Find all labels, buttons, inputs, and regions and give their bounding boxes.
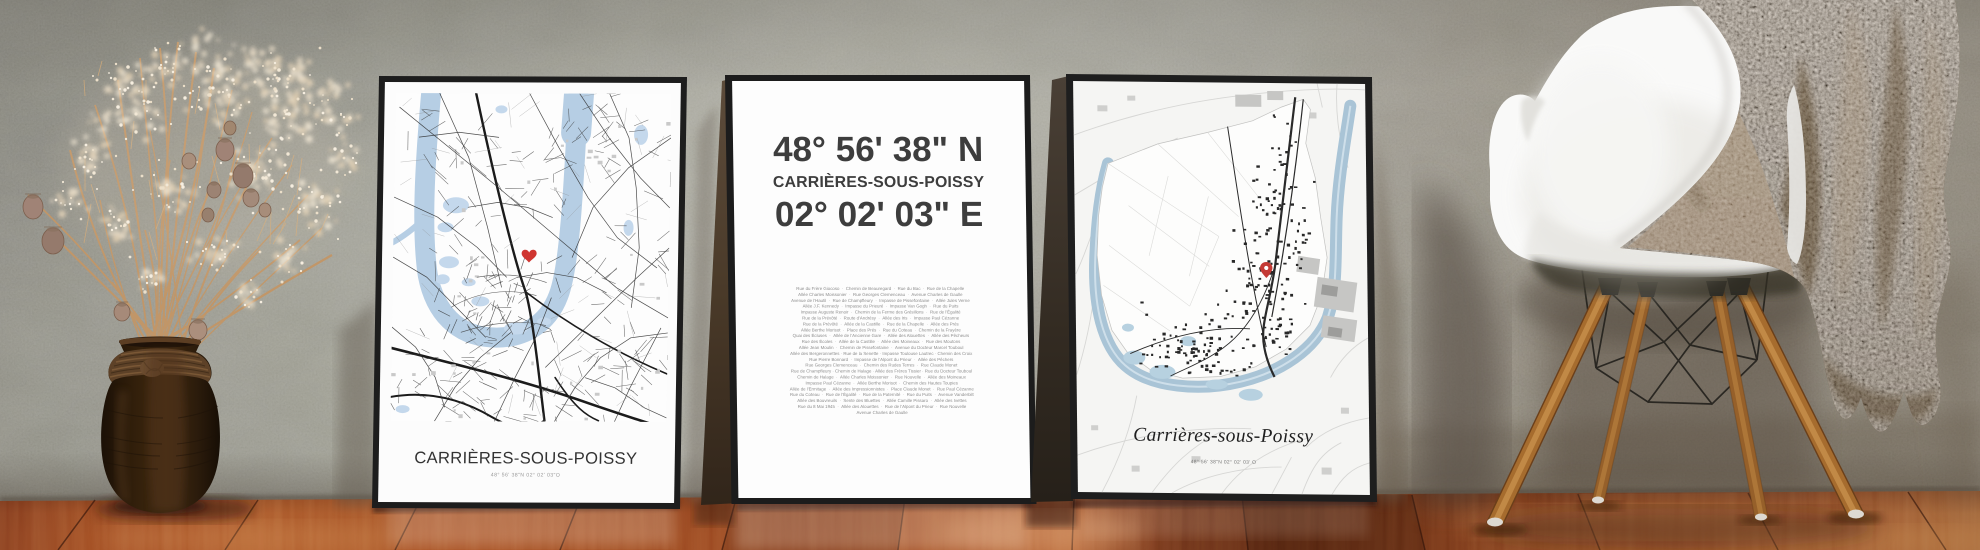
svg-text:Rue du Frère Giocoso · Chemi: Rue du Frère Giocoso · Chemin de Beaureg… <box>796 286 965 291</box>
svg-text:02° 02' 03" E: 02° 02' 03" E <box>775 195 984 234</box>
svg-text:Rue Georges Clemenceau · Che: Rue Georges Clemenceau · Chemin des Rude… <box>805 363 958 368</box>
svg-text:Rue de Champfleury · Chemin de: Rue de Champfleury · Chemin de Halage · … <box>791 369 972 374</box>
svg-text:Rue de la Prévôté · Route d': Rue de la Prévôté · Route d'Andrésy · Al… <box>802 316 960 321</box>
svg-text:Rue de la Prévôté · Allée de: Rue de la Prévôté · Allée de la Castille… <box>803 321 960 326</box>
svg-text:Impasse Paul Cézanne · Allée: Impasse Paul Cézanne · Allée Berthe Mori… <box>805 380 958 385</box>
svg-text:48° 56' 38"N 02° 02' 03"O: 48° 56' 38"N 02° 02' 03"O <box>491 472 561 478</box>
svg-text:Allée Jean Moulin · Chemin d: Allée Jean Moulin · Chemin de Pissefonta… <box>799 345 964 350</box>
svg-text:Impasse Auguste Renoir · Che: Impasse Auguste Renoir · Chemin de la Fe… <box>801 310 962 315</box>
svg-text:Allée Charles Moissonier · R: Allée Charles Moissonier · Rue Georges C… <box>798 292 963 297</box>
svg-text:Chemin de Halage · Allée Cha: Chemin de Halage · Allée Charles Moisson… <box>797 375 967 380</box>
svg-text:Avenue Charles de Gaulle: Avenue Charles de Gaulle <box>856 410 908 415</box>
svg-text:Rue du 8 Mai 1945 · Allée de: Rue du 8 Mai 1945 · Allée des Alouettes … <box>798 404 967 409</box>
svg-text:Quai des Écluses · Allée de: Quai des Écluses · Allée de l'Ancienne G… <box>793 333 970 338</box>
svg-text:48° 56' 38"N 02° 02' 03' O: 48° 56' 38"N 02° 02' 03' O <box>1191 459 1257 466</box>
svg-text:Allée des Bouvreuils · Sente: Allée des Bouvreuils · Sente des Bluette… <box>797 398 967 403</box>
svg-text:Allée Berthe Morisot · Place: Allée Berthe Morisot · Place des Prés · … <box>801 327 961 332</box>
svg-text:Allée J.F. Kennedy · Impasse: Allée J.F. Kennedy · Impasse du Prieuré … <box>803 304 960 309</box>
svg-text:Allée des Bergeronnettes · Rue: Allée des Bergeronnettes · Rue de la Sen… <box>790 351 973 356</box>
svg-text:CARRIÈRES-SOUS-POISSY: CARRIÈRES-SOUS-POISSY <box>773 172 985 191</box>
svg-text:Carrières-sous-Poissy: Carrières-sous-Poissy <box>1133 425 1313 448</box>
svg-text:Avenue de l'Hautil · Rue de: Avenue de l'Hautil · Rue de Champfleury … <box>791 298 970 303</box>
svg-text:CARRIÈRES-SOUS-POISSY: CARRIÈRES-SOUS-POISSY <box>414 448 637 468</box>
svg-text:Allée de l'Ermitage · Allée: Allée de l'Ermitage · Allée des Impressi… <box>790 386 975 391</box>
svg-text:Rue des Écoles · Allée de la: Rue des Écoles · Allée de la Castille · … <box>802 339 962 344</box>
svg-text:Rue du Coteau · Rue de l'Éga: Rue du Coteau · Rue de l'Égalité · Rue d… <box>790 392 975 397</box>
svg-text:Rue Pierre Bonnard · Impasse: Rue Pierre Bonnard · Impasse de l'Alpont… <box>809 357 954 362</box>
svg-text:48° 56' 38" N: 48° 56' 38" N <box>773 130 984 169</box>
